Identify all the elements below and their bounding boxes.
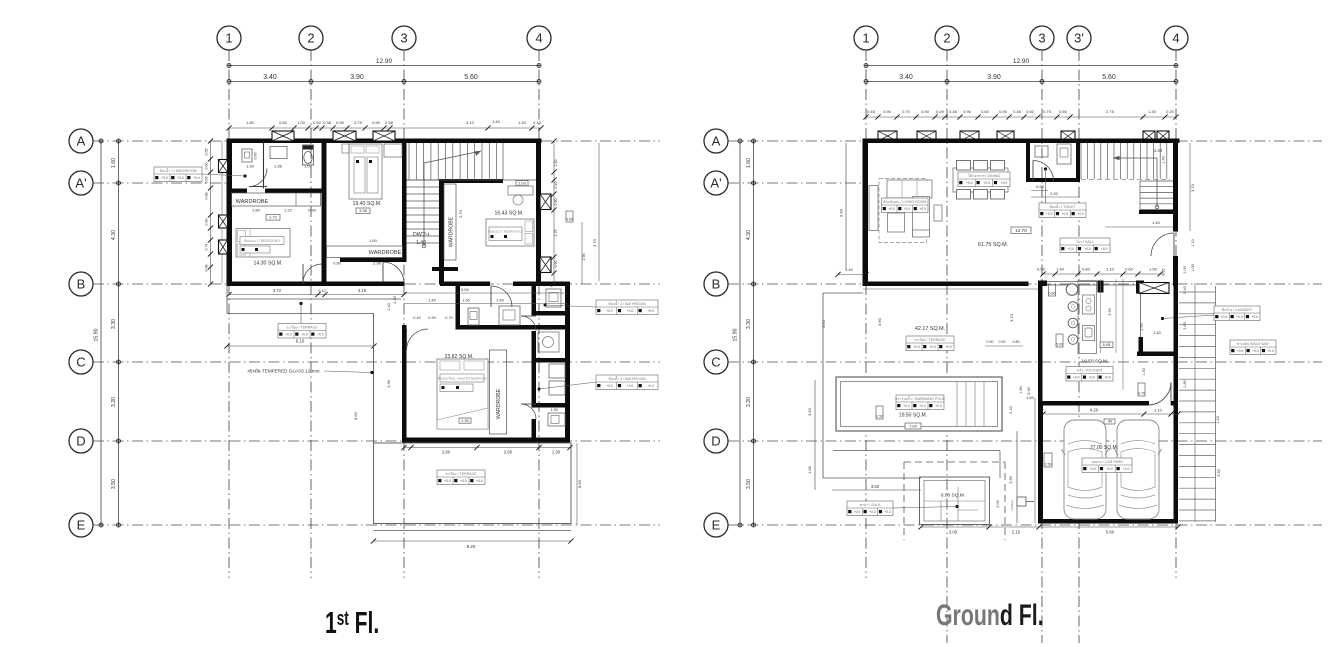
svg-text:A': A' [75, 176, 86, 191]
svg-text:4.50: 4.50 [461, 287, 470, 292]
svg-text:ห้องน้ำ 2 / BATHROOM: ห้องน้ำ 2 / BATHROOM [608, 301, 645, 306]
svg-text:4.10: 4.10 [466, 120, 475, 125]
svg-text:+0.0: +0.0 [1077, 212, 1084, 216]
svg-text:3: 3 [400, 31, 407, 46]
svg-text:3.60: 3.60 [871, 484, 880, 489]
svg-text:+0.0: +0.0 [854, 510, 861, 514]
svg-text:0.70: 0.70 [902, 109, 911, 114]
svg-text:0.90: 0.90 [963, 109, 972, 114]
svg-text:+0.0: +0.0 [1101, 247, 1108, 251]
svg-text:+0.0: +0.0 [301, 333, 308, 337]
svg-text:+0.0: +0.0 [648, 384, 655, 388]
svg-text:E: E [77, 518, 86, 533]
svg-text:1.72: 1.72 [269, 215, 278, 220]
svg-text:0.90: 0.90 [333, 261, 342, 266]
svg-text:1.00: 1.00 [1191, 264, 1195, 271]
svg-text:2.98: 2.98 [373, 261, 382, 266]
svg-text:12.90: 12.90 [1013, 58, 1030, 65]
svg-text:3.90: 3.90 [1009, 476, 1013, 483]
svg-text:1.80: 1.80 [246, 120, 255, 125]
svg-text:D: D [711, 434, 720, 449]
svg-text:0.70: 0.70 [1138, 392, 1145, 396]
svg-text:5.60: 5.60 [464, 74, 478, 81]
svg-text:+0.0: +0.0 [1236, 315, 1243, 319]
svg-text:0.98: 0.98 [205, 193, 209, 200]
svg-text:0.90: 0.90 [883, 109, 892, 114]
svg-text:0.40: 0.40 [1183, 286, 1187, 293]
svg-text:+0.0: +0.0 [606, 309, 613, 313]
svg-text:2.60: 2.60 [504, 450, 513, 455]
svg-text:ห้องนั่งเล่น / LIVING ROOM: ห้องนั่งเล่น / LIVING ROOM [883, 199, 926, 204]
svg-text:7.00: 7.00 [909, 424, 918, 429]
svg-text:12.70: 12.70 [1015, 228, 1027, 233]
svg-text:2.00: 2.00 [996, 500, 1000, 507]
svg-text:C: C [76, 355, 85, 370]
svg-text:B: B [77, 277, 86, 292]
svg-text:+0.0: +0.0 [627, 384, 634, 388]
svg-text:1.50: 1.50 [876, 415, 883, 419]
svg-text:1.40: 1.40 [496, 298, 505, 303]
svg-text:+0.0: +0.0 [317, 333, 324, 337]
svg-text:5.60: 5.60 [1106, 530, 1115, 535]
svg-text:WARDROBE: WARDROBE [369, 250, 402, 256]
svg-text:0.10: 0.10 [533, 120, 542, 125]
svg-text:WARDROBE: WARDROBE [449, 216, 455, 247]
svg-text:+0.0: +0.0 [929, 345, 936, 349]
svg-text:0.60: 0.60 [1026, 109, 1035, 114]
svg-text:+0.0: +0.0 [1073, 376, 1080, 380]
svg-text:2.90: 2.90 [1140, 323, 1144, 330]
svg-text:3.38: 3.38 [359, 208, 368, 213]
svg-text:0.90: 0.90 [554, 199, 558, 206]
svg-text:+0.0: +0.0 [1001, 181, 1008, 185]
svg-text:5.60: 5.60 [1102, 74, 1116, 81]
svg-text:+0.0: +0.0 [1046, 212, 1053, 216]
svg-text:5.45: 5.45 [1103, 342, 1112, 347]
svg-text:0.30: 0.30 [987, 340, 994, 344]
svg-text:ห้องนอนใหญ่ - MASTER BEDROOM: ห้องนอนใหญ่ - MASTER BEDROOM [438, 377, 487, 381]
svg-text:0.70: 0.70 [445, 316, 452, 320]
svg-text:4.30: 4.30 [387, 380, 391, 387]
svg-text:0.38: 0.38 [385, 120, 394, 125]
svg-text:+0.0: +0.0 [476, 479, 483, 483]
svg-text:61.75 SQ.M.: 61.75 SQ.M. [978, 242, 1008, 248]
svg-text:+0.0: +0.0 [1104, 376, 1111, 380]
svg-text:8.60: 8.60 [353, 411, 358, 420]
svg-text:+0.0: +0.0 [903, 404, 910, 408]
svg-text:0.75: 0.75 [1043, 109, 1052, 114]
svg-text:2: 2 [943, 31, 950, 46]
svg-text:2.30: 2.30 [393, 296, 397, 303]
svg-text:2.20: 2.20 [1050, 191, 1059, 196]
svg-text:1.00: 1.00 [1183, 266, 1187, 273]
svg-text:4.30: 4.30 [111, 230, 117, 240]
svg-text:1: 1 [225, 31, 232, 46]
svg-text:ห้องน้ำ 3 / BATHROOM: ห้องน้ำ 3 / BATHROOM [608, 376, 645, 381]
svg-text:1.60: 1.60 [369, 238, 378, 243]
svg-text:+0.0: +0.0 [648, 309, 655, 313]
svg-text:3.20: 3.20 [111, 397, 117, 407]
svg-text:ระเบียง / TERRACE: ระเบียง / TERRACE [914, 337, 946, 342]
svg-text:0.98: 0.98 [205, 265, 209, 272]
svg-text:2.80: 2.80 [442, 450, 451, 455]
svg-text:.40: .40 [1107, 419, 1113, 424]
svg-text:+0.0: +0.0 [1084, 247, 1091, 251]
svg-text:ทางเดิน WALK WAY: ทางเดิน WALK WAY [1237, 342, 1270, 346]
svg-text:+0.0: +0.0 [285, 333, 292, 337]
svg-text:ศาลา / SALA: ศาลา / SALA [860, 503, 881, 507]
svg-text:3.70: 3.70 [1009, 313, 1014, 322]
svg-text:3.70: 3.70 [592, 238, 597, 247]
svg-text:A': A' [710, 176, 721, 191]
svg-text:0.30: 0.30 [999, 340, 1006, 344]
svg-text:0.79: 0.79 [354, 120, 363, 125]
svg-text:+0.0: +0.0 [1068, 247, 1075, 251]
svg-text:1.36: 1.36 [274, 164, 283, 169]
svg-text:3.60: 3.60 [821, 319, 826, 328]
svg-text:+0.0: +0.0 [884, 510, 891, 514]
svg-text:0.60: 0.60 [544, 327, 551, 331]
svg-text:3.40: 3.40 [263, 74, 277, 81]
svg-text:1.40: 1.40 [1154, 148, 1163, 153]
svg-text:15.90: 15.90 [94, 328, 100, 341]
svg-text:1.80: 1.80 [1019, 386, 1023, 393]
svg-text:0.60: 0.60 [1059, 109, 1068, 114]
svg-text:1.30: 1.30 [1148, 109, 1157, 114]
svg-text:3.72: 3.72 [273, 288, 282, 293]
svg-text:ครัว / KITCHEN: ครัว / KITCHEN [1077, 369, 1103, 373]
svg-text:0.90: 0.90 [372, 120, 381, 125]
svg-text:16.43 SQ.M.: 16.43 SQ.M. [494, 211, 523, 217]
svg-text:0.45: 0.45 [867, 109, 876, 114]
svg-text:0.60: 0.60 [981, 109, 990, 114]
svg-text:ห้องนอน 2 / BEDROOM 2: ห้องนอน 2 / BEDROOM 2 [488, 230, 523, 234]
svg-text:+0.0: +0.0 [945, 345, 952, 349]
svg-text:8.20: 8.20 [467, 544, 476, 549]
svg-text:2.75: 2.75 [1106, 109, 1115, 114]
svg-text:6.00 SQ.M.: 6.00 SQ.M. [941, 493, 965, 499]
svg-text:27.00 SQ.M.: 27.00 SQ.M. [1090, 445, 1118, 451]
svg-text:19.50 SQ.M.: 19.50 SQ.M. [899, 413, 927, 419]
svg-text:1.60: 1.60 [746, 158, 752, 168]
svg-text:WARDROBE: WARDROBE [236, 199, 269, 205]
svg-text:D: D [76, 434, 85, 449]
svg-text:4.30: 4.30 [746, 230, 752, 240]
svg-text:1.50: 1.50 [1045, 463, 1052, 467]
svg-text:โถง / HALL: โถง / HALL [1076, 239, 1094, 244]
svg-text:1.40: 1.40 [387, 303, 391, 310]
svg-text:0.60: 0.60 [205, 163, 209, 170]
svg-text:2.90: 2.90 [582, 254, 586, 261]
svg-text:0.90: 0.90 [554, 261, 558, 268]
svg-text:4: 4 [535, 31, 542, 46]
svg-text:0.10: 0.10 [318, 289, 325, 293]
svg-text:3.70: 3.70 [1190, 183, 1195, 192]
svg-text:1.30: 1.30 [246, 164, 255, 169]
svg-text:1.00: 1.00 [807, 465, 812, 474]
svg-text:3.30: 3.30 [111, 319, 117, 329]
svg-text:+0.0: +0.0 [444, 479, 451, 483]
svg-text:0.45: 0.45 [1013, 109, 1022, 114]
svg-text:3.50: 3.50 [807, 407, 812, 416]
svg-text:1.10: 1.10 [1154, 408, 1163, 413]
svg-text:ระเบียง / TERRACE: ระเบียง / TERRACE [445, 471, 477, 476]
svg-text:Outdoor: Outdoor [1010, 499, 1014, 511]
svg-text:1.80: 1.80 [252, 208, 261, 213]
svg-text:5.90: 5.90 [839, 208, 844, 217]
svg-text:1.40: 1.40 [1152, 220, 1161, 225]
svg-text:1.10: 1.10 [1106, 267, 1115, 272]
svg-text:0.90: 0.90 [205, 219, 209, 226]
svg-text:C: C [711, 355, 720, 370]
svg-text:0.90: 0.90 [1036, 184, 1045, 189]
svg-text:1.40: 1.40 [1056, 267, 1065, 272]
svg-text:+0.0: +0.0 [983, 181, 990, 185]
svg-text:1st Fl.: 1st Fl. [325, 605, 379, 640]
svg-text:+0.0: +0.0 [193, 176, 200, 180]
svg-text:0.40: 0.40 [413, 316, 420, 320]
svg-text:+0.0: +0.0 [177, 176, 184, 180]
svg-text:3.90: 3.90 [1108, 308, 1112, 315]
svg-text:1.60: 1.60 [1026, 395, 1035, 400]
svg-text:+0.0: +0.0 [869, 510, 876, 514]
svg-text:1.30: 1.30 [1142, 368, 1146, 375]
svg-text:14.30 SQ.M.: 14.30 SQ.M. [253, 261, 282, 267]
svg-text:จอดรถ / CAR PARK: จอดรถ / CAR PARK [1091, 460, 1123, 464]
svg-text:1.50: 1.50 [462, 298, 471, 303]
svg-text:1.50: 1.50 [1149, 267, 1158, 272]
svg-text:1.00: 1.00 [297, 120, 306, 125]
svg-text:ห้องนอน 1 / BEDROOM 1: ห้องนอน 1 / BEDROOM 1 [244, 239, 281, 243]
svg-text:+0.0: +0.0 [935, 404, 942, 408]
svg-text:15.90: 15.90 [733, 328, 739, 341]
svg-text:1.75: 1.75 [554, 230, 558, 237]
svg-text:+0.0: +0.0 [1267, 349, 1274, 353]
svg-text:ห้องน้ำ 1 / BATHROOM: ห้องน้ำ 1 / BATHROOM [159, 168, 196, 173]
svg-text:3.60: 3.60 [877, 317, 882, 326]
svg-text:1.40: 1.40 [1216, 416, 1220, 423]
svg-text:3.18: 3.18 [358, 288, 367, 293]
svg-text:0.65: 0.65 [205, 149, 209, 156]
svg-text:4.20: 4.20 [1090, 408, 1099, 413]
svg-text:0.60: 0.60 [1049, 292, 1056, 296]
svg-text:ซักล้าง / LAUNDRY: ซักล้าง / LAUNDRY [1222, 307, 1253, 312]
svg-text:สระว่ายน้ำ / SWIMMING POOL: สระว่ายน้ำ / SWIMMING POOL [895, 396, 945, 401]
svg-text:2: 2 [307, 31, 314, 46]
svg-text:+0.0: +0.0 [966, 181, 973, 185]
svg-text:+0.0: +0.0 [904, 207, 911, 211]
svg-text:+0.0: +0.0 [888, 207, 895, 211]
svg-text:3.50: 3.50 [746, 479, 752, 489]
svg-text:WARDROBE: WARDROBE [496, 388, 502, 419]
svg-text:0.50: 0.50 [1037, 267, 1046, 272]
svg-text:19.40 SQ.M.: 19.40 SQ.M. [352, 201, 381, 207]
svg-text:0.60: 0.60 [566, 218, 573, 222]
svg-text:0.60: 0.60 [1162, 269, 1166, 276]
svg-text:1.40: 1.40 [518, 120, 527, 125]
svg-text:3: 3 [1038, 31, 1045, 46]
svg-text:1.22: 1.22 [284, 208, 293, 213]
svg-text:1.40: 1.40 [492, 119, 501, 124]
svg-text:3.90: 3.90 [350, 74, 364, 81]
svg-text:1.30: 1.30 [550, 408, 557, 412]
svg-text:0.49: 0.49 [936, 109, 945, 114]
svg-text:0.90: 0.90 [308, 208, 317, 213]
svg-text:1.40: 1.40 [416, 240, 426, 246]
svg-text:1.40: 1.40 [845, 267, 854, 272]
svg-text:3.50: 3.50 [1217, 469, 1221, 476]
svg-text:1.04: 1.04 [304, 164, 313, 169]
svg-text:3': 3' [1074, 31, 1084, 46]
svg-text:0.40: 0.40 [554, 182, 558, 189]
svg-text:1.60: 1.60 [111, 158, 117, 168]
svg-text:5.00: 5.00 [1056, 343, 1063, 347]
svg-text:0.60: 0.60 [254, 153, 258, 160]
svg-text:+0.0: +0.0 [1251, 315, 1258, 319]
svg-text:4: 4 [1172, 31, 1179, 46]
svg-text:+0.0: +0.0 [1106, 467, 1113, 471]
svg-text:+0.0: +0.0 [1089, 376, 1096, 380]
svg-text:1: 1 [862, 31, 869, 46]
svg-text:+0.0: +0.0 [913, 345, 920, 349]
svg-text:DW'2-t: DW'2-t [413, 232, 430, 238]
svg-text:19.50 SQ.M.: 19.50 SQ.M. [1082, 359, 1109, 365]
svg-text:1.40: 1.40 [428, 298, 437, 303]
svg-text:1.10: 1.10 [1191, 239, 1195, 246]
svg-text:+0.0: +0.0 [919, 207, 926, 211]
svg-text:6.30: 6.30 [1027, 387, 1031, 394]
svg-text:2.20: 2.20 [1009, 406, 1013, 413]
svg-text:6.10: 6.10 [296, 339, 305, 344]
svg-text:0.90: 0.90 [428, 316, 435, 320]
svg-text:+0.0: +0.0 [1237, 349, 1244, 353]
svg-text:E: E [712, 518, 721, 533]
svg-text:1.30: 1.30 [552, 450, 561, 455]
svg-text:0.74: 0.74 [205, 244, 209, 251]
svg-text:1.40: 1.40 [1162, 156, 1166, 163]
svg-text:3.90: 3.90 [987, 74, 1001, 81]
svg-text:B: B [712, 277, 721, 292]
svg-text:2.80: 2.80 [1183, 322, 1187, 329]
svg-text:+0.0: +0.0 [1252, 349, 1259, 353]
svg-text:8.50: 8.50 [577, 479, 582, 488]
svg-text:0.90: 0.90 [921, 109, 930, 114]
svg-text:3.20: 3.20 [746, 397, 752, 407]
svg-text:0.90: 0.90 [999, 109, 1008, 114]
svg-text:3.00: 3.00 [949, 530, 958, 535]
svg-text:1.30: 1.30 [461, 418, 470, 423]
svg-text:0.52: 0.52 [313, 120, 322, 125]
svg-text:0.60: 0.60 [1125, 267, 1134, 272]
svg-text:0.60: 0.60 [279, 120, 288, 125]
svg-text:3.50: 3.50 [111, 479, 117, 489]
svg-text:A: A [712, 134, 721, 149]
svg-text:1.80: 1.80 [1183, 380, 1187, 387]
svg-text:ระเบียง / TERRACE: ระเบียง / TERRACE [286, 325, 318, 330]
svg-text:+0.0: +0.0 [919, 404, 926, 408]
svg-text:45xมัย-TEMPERED GLASS 12 mm.: 45xมัย-TEMPERED GLASS 12 mm. [247, 368, 320, 374]
svg-text:+0.0: +0.0 [1221, 315, 1228, 319]
svg-text:1.93: 1.93 [518, 180, 527, 185]
svg-text:+0.0: +0.0 [606, 384, 613, 388]
svg-text:12.90: 12.90 [376, 58, 393, 65]
svg-text:3.30: 3.30 [746, 319, 752, 329]
svg-text:0.20: 0.20 [1166, 109, 1175, 114]
svg-text:Ground Fl.: Ground Fl. [936, 597, 1044, 632]
svg-text:+0.0: +0.0 [627, 309, 634, 313]
svg-text:1.50: 1.50 [554, 160, 558, 167]
svg-text:+0.0: +0.0 [161, 176, 168, 180]
svg-text:2.10: 2.10 [1012, 530, 1021, 535]
svg-text:42.17 SQ.M.: 42.17 SQ.M. [915, 326, 945, 332]
svg-text:0.90: 0.90 [336, 120, 345, 125]
svg-text:โต๊ะอาหาร / DINING: โต๊ะอาหาร / DINING [968, 173, 1000, 178]
svg-text:+0.0: +0.0 [460, 479, 467, 483]
svg-text:+0.0: +0.0 [1123, 467, 1130, 471]
svg-text:+0.0: +0.0 [1090, 467, 1097, 471]
svg-text:0.80: 0.80 [1013, 340, 1020, 344]
svg-text:A: A [77, 134, 86, 149]
svg-text:0.45: 0.45 [949, 109, 958, 114]
svg-text:1.40: 1.40 [1153, 330, 1162, 335]
svg-text:+0.0: +0.0 [1062, 212, 1069, 216]
svg-text:ห้องน้ำ / TOILET: ห้องน้ำ / TOILET [1049, 204, 1076, 209]
svg-text:0.38: 0.38 [323, 120, 332, 125]
svg-text:0.80: 0.80 [1082, 267, 1091, 272]
svg-text:2.70: 2.70 [458, 209, 463, 218]
svg-text:0.65: 0.65 [205, 177, 209, 184]
svg-text:3.40: 3.40 [899, 74, 913, 81]
